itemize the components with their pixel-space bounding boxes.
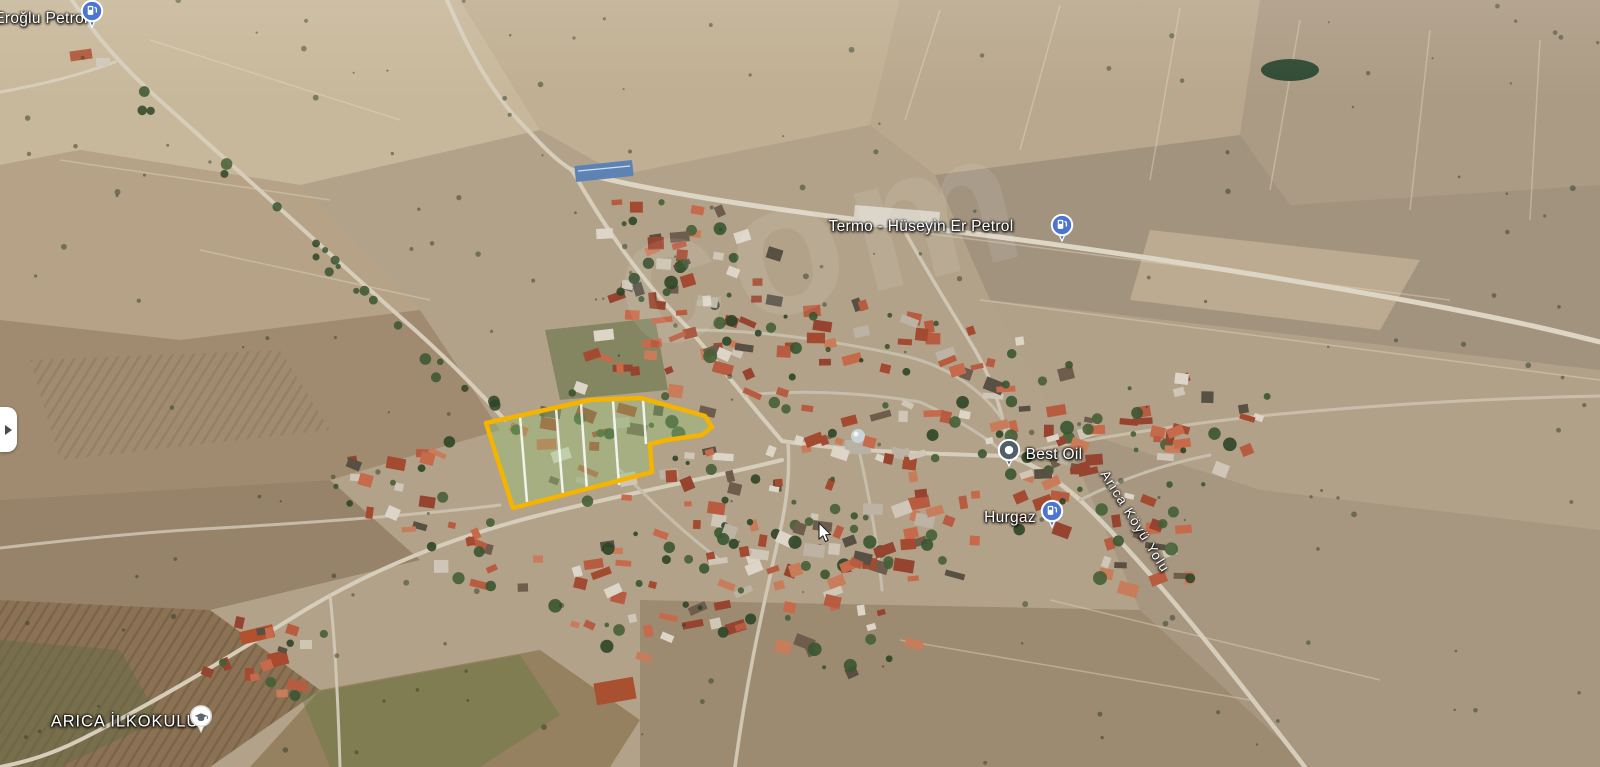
sidebar-expand-button[interactable] — [0, 407, 17, 452]
place-label-termo-huseyin-er-petrol[interactable]: Termo - Hüseyin Er Petrol — [829, 218, 1014, 236]
gas-station-pin-icon[interactable] — [1039, 499, 1066, 530]
school-pin-icon[interactable] — [188, 704, 215, 735]
gas-station-pin-icon[interactable] — [1049, 213, 1076, 244]
chevron-right-icon — [5, 425, 12, 435]
mouse-cursor — [818, 522, 833, 549]
road-label-arica-koyu-yolu: Arıca Köyü Yolu — [1098, 468, 1173, 576]
place-label-best-oil[interactable]: Best Oil — [1026, 446, 1083, 464]
place-label-eroglu-petrol[interactable]: Eroğlu Petrol — [0, 10, 88, 28]
place-label-hurgaz[interactable]: Hurgaz — [984, 509, 1036, 527]
place-label-arica-ilkokulu[interactable]: ARICA İLKOKULU — [51, 713, 199, 732]
business-pin-icon[interactable] — [996, 438, 1023, 469]
gas-station-pin-icon[interactable] — [79, 0, 106, 30]
map-viewport[interactable]: com Eroğlu Petrol Termo - Hüseyin Er Pet… — [0, 0, 1600, 767]
watermark: com — [590, 83, 1049, 396]
